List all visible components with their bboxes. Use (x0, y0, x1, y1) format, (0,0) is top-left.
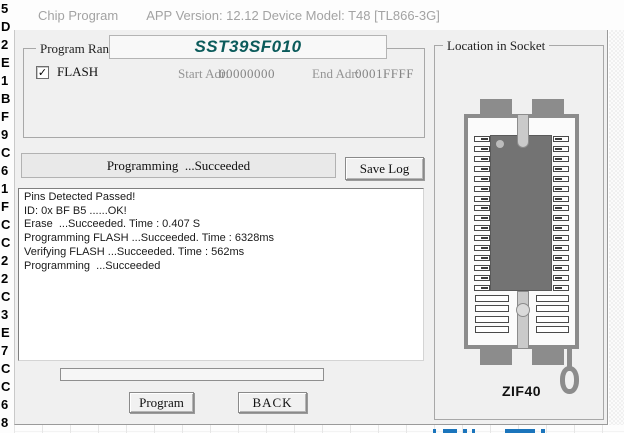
socket-pin (474, 186, 490, 192)
socket-pin (475, 295, 509, 302)
bottom-progress-bar (60, 368, 324, 381)
log-line: Programming ...Succeeded (24, 260, 418, 274)
socket-pin (474, 255, 490, 261)
socket-pin (553, 176, 569, 182)
background-hex-char: 6 (1, 163, 14, 178)
background-hex-char: B (1, 91, 14, 106)
partial-text-fragment (541, 429, 545, 433)
save-log-button[interactable]: Save Log (345, 157, 424, 180)
partial-text-fragment (472, 429, 475, 433)
socket-pin (553, 146, 569, 152)
chip-name-banner: SST39SF010 (109, 35, 387, 59)
socket-pin (553, 275, 569, 281)
socket-pin (553, 225, 569, 231)
socket-pin (553, 255, 569, 261)
chip-in-socket (490, 135, 552, 291)
background-hex-char: F (1, 109, 14, 124)
socket-pin (474, 196, 490, 202)
socket-pin (474, 285, 490, 291)
socket-pin (553, 186, 569, 192)
socket-pin (474, 146, 490, 152)
socket-pin (475, 326, 509, 333)
flash-checkbox-label[interactable]: FLASH (57, 64, 98, 80)
socket-pin (474, 235, 490, 241)
background-hex-char: E (1, 325, 14, 340)
back-button[interactable]: BACK (238, 392, 307, 413)
socket-pins-left-occupied (474, 136, 490, 291)
background-hex-char: C (1, 379, 14, 394)
partial-text-fragment (505, 429, 535, 433)
socket-pin (474, 166, 490, 172)
partial-text-fragment (433, 429, 436, 433)
socket-top-tab-right (532, 99, 564, 115)
window-title: Chip Program (38, 8, 118, 23)
socket-center-rail (517, 291, 529, 349)
background-hex-char: 1 (1, 181, 14, 196)
socket-pin (536, 326, 569, 333)
socket-center-knob (516, 303, 530, 317)
background-hex-char: C (1, 217, 14, 232)
background-hex-char: 9 (1, 127, 14, 142)
background-hex-column: 5D2E1BF9C61FCC22C3E7CC68 (0, 0, 14, 433)
background-texture-strip (609, 30, 624, 433)
background-hex-char: 6 (1, 397, 14, 412)
socket-bottom-tab-left (480, 348, 512, 365)
socket-pin (553, 166, 569, 172)
socket-pin (474, 205, 490, 211)
socket-pin (474, 176, 490, 182)
chip-program-dialog: Program Range SST39SF010 ✓ FLASH Start A… (14, 30, 608, 425)
background-hex-char: 5 (1, 1, 14, 16)
program-button[interactable]: Program (129, 392, 194, 413)
socket-pin (553, 156, 569, 162)
background-hex-char: 2 (1, 253, 14, 268)
background-hex-char: C (1, 145, 14, 160)
background-hex-char: 2 (1, 271, 14, 286)
background-hex-char: 7 (1, 343, 14, 358)
socket-pin (474, 225, 490, 231)
program-range-group: Program Range (23, 48, 425, 138)
background-hex-char: C (1, 235, 14, 250)
socket-pin (474, 245, 490, 251)
socket-pin (474, 275, 490, 281)
background-hex-char: 2 (1, 37, 14, 52)
flash-checkbox[interactable]: ✓ (36, 66, 49, 79)
socket-pin (553, 245, 569, 251)
socket-lever-bar (517, 114, 529, 148)
log-line: Verifying FLASH ...Succeeded. Time : 562… (24, 246, 418, 260)
socket-pin (553, 136, 569, 142)
dialog-titlebar: Chip Program APP Version: 12.12 Device M… (14, 0, 624, 30)
location-in-socket-label: Location in Socket (443, 38, 549, 54)
background-hex-char: 8 (1, 415, 14, 430)
checkmark-icon: ✓ (38, 66, 47, 79)
partial-text-fragment (443, 429, 457, 433)
background-hex-char: C (1, 289, 14, 304)
partial-text-fragment (463, 429, 467, 433)
log-line: ID: 0x BF B5 ......OK! (24, 205, 418, 219)
socket-pins-right-occupied (553, 136, 569, 291)
socket-pin (474, 215, 490, 221)
socket-pin (475, 316, 509, 323)
socket-pin (474, 136, 490, 142)
end-adr-label: End Adr: (312, 66, 359, 82)
end-adr-value: 0001FFFF (355, 66, 414, 82)
socket-pin (474, 265, 490, 271)
background-hex-char: F (1, 199, 14, 214)
log-line: Pins Detected Passed! (24, 191, 418, 205)
socket-pin (536, 316, 569, 323)
log-line: Erase ...Succeeded. Time : 0.407 S (24, 218, 418, 232)
socket-type-label: ZIF40 (464, 383, 579, 399)
socket-bottom-tab-right (532, 348, 564, 365)
socket-pin (553, 196, 569, 202)
pin1-marker-dot (496, 140, 504, 148)
location-in-socket-group: Location in Socket ZIF40 (434, 45, 604, 420)
background-hex-char: E (1, 55, 14, 70)
status-progress-bar: Programming ...Succeeded (21, 153, 336, 178)
socket-pin (553, 285, 569, 291)
socket-pin (553, 235, 569, 241)
background-hex-char: 1 (1, 73, 14, 88)
socket-pin (536, 305, 569, 312)
socket-pins-left-empty (475, 295, 509, 333)
background-hex-char: C (1, 361, 14, 376)
socket-pin (474, 156, 490, 162)
background-hex-char: D (1, 19, 14, 34)
background-hex-char: 3 (1, 307, 14, 322)
log-line: Programming FLASH ...Succeeded. Time : 6… (24, 232, 418, 246)
socket-pin (475, 305, 509, 312)
socket-pin (553, 205, 569, 211)
screen: 5D2E1BF9C61FCC22C3E7CC68 Chip Program AP… (0, 0, 624, 433)
start-adr-value: 00000000 (219, 66, 275, 82)
socket-pins-right-empty (536, 295, 569, 333)
log-area[interactable]: Pins Detected Passed!ID: 0x BF B5 ......… (18, 188, 424, 361)
socket-pin (553, 215, 569, 221)
socket-top-tab-left (480, 99, 512, 115)
socket-pin (553, 265, 569, 271)
socket-pin (536, 295, 569, 302)
window-subtitle: APP Version: 12.12 Device Model: T48 [TL… (146, 8, 440, 23)
